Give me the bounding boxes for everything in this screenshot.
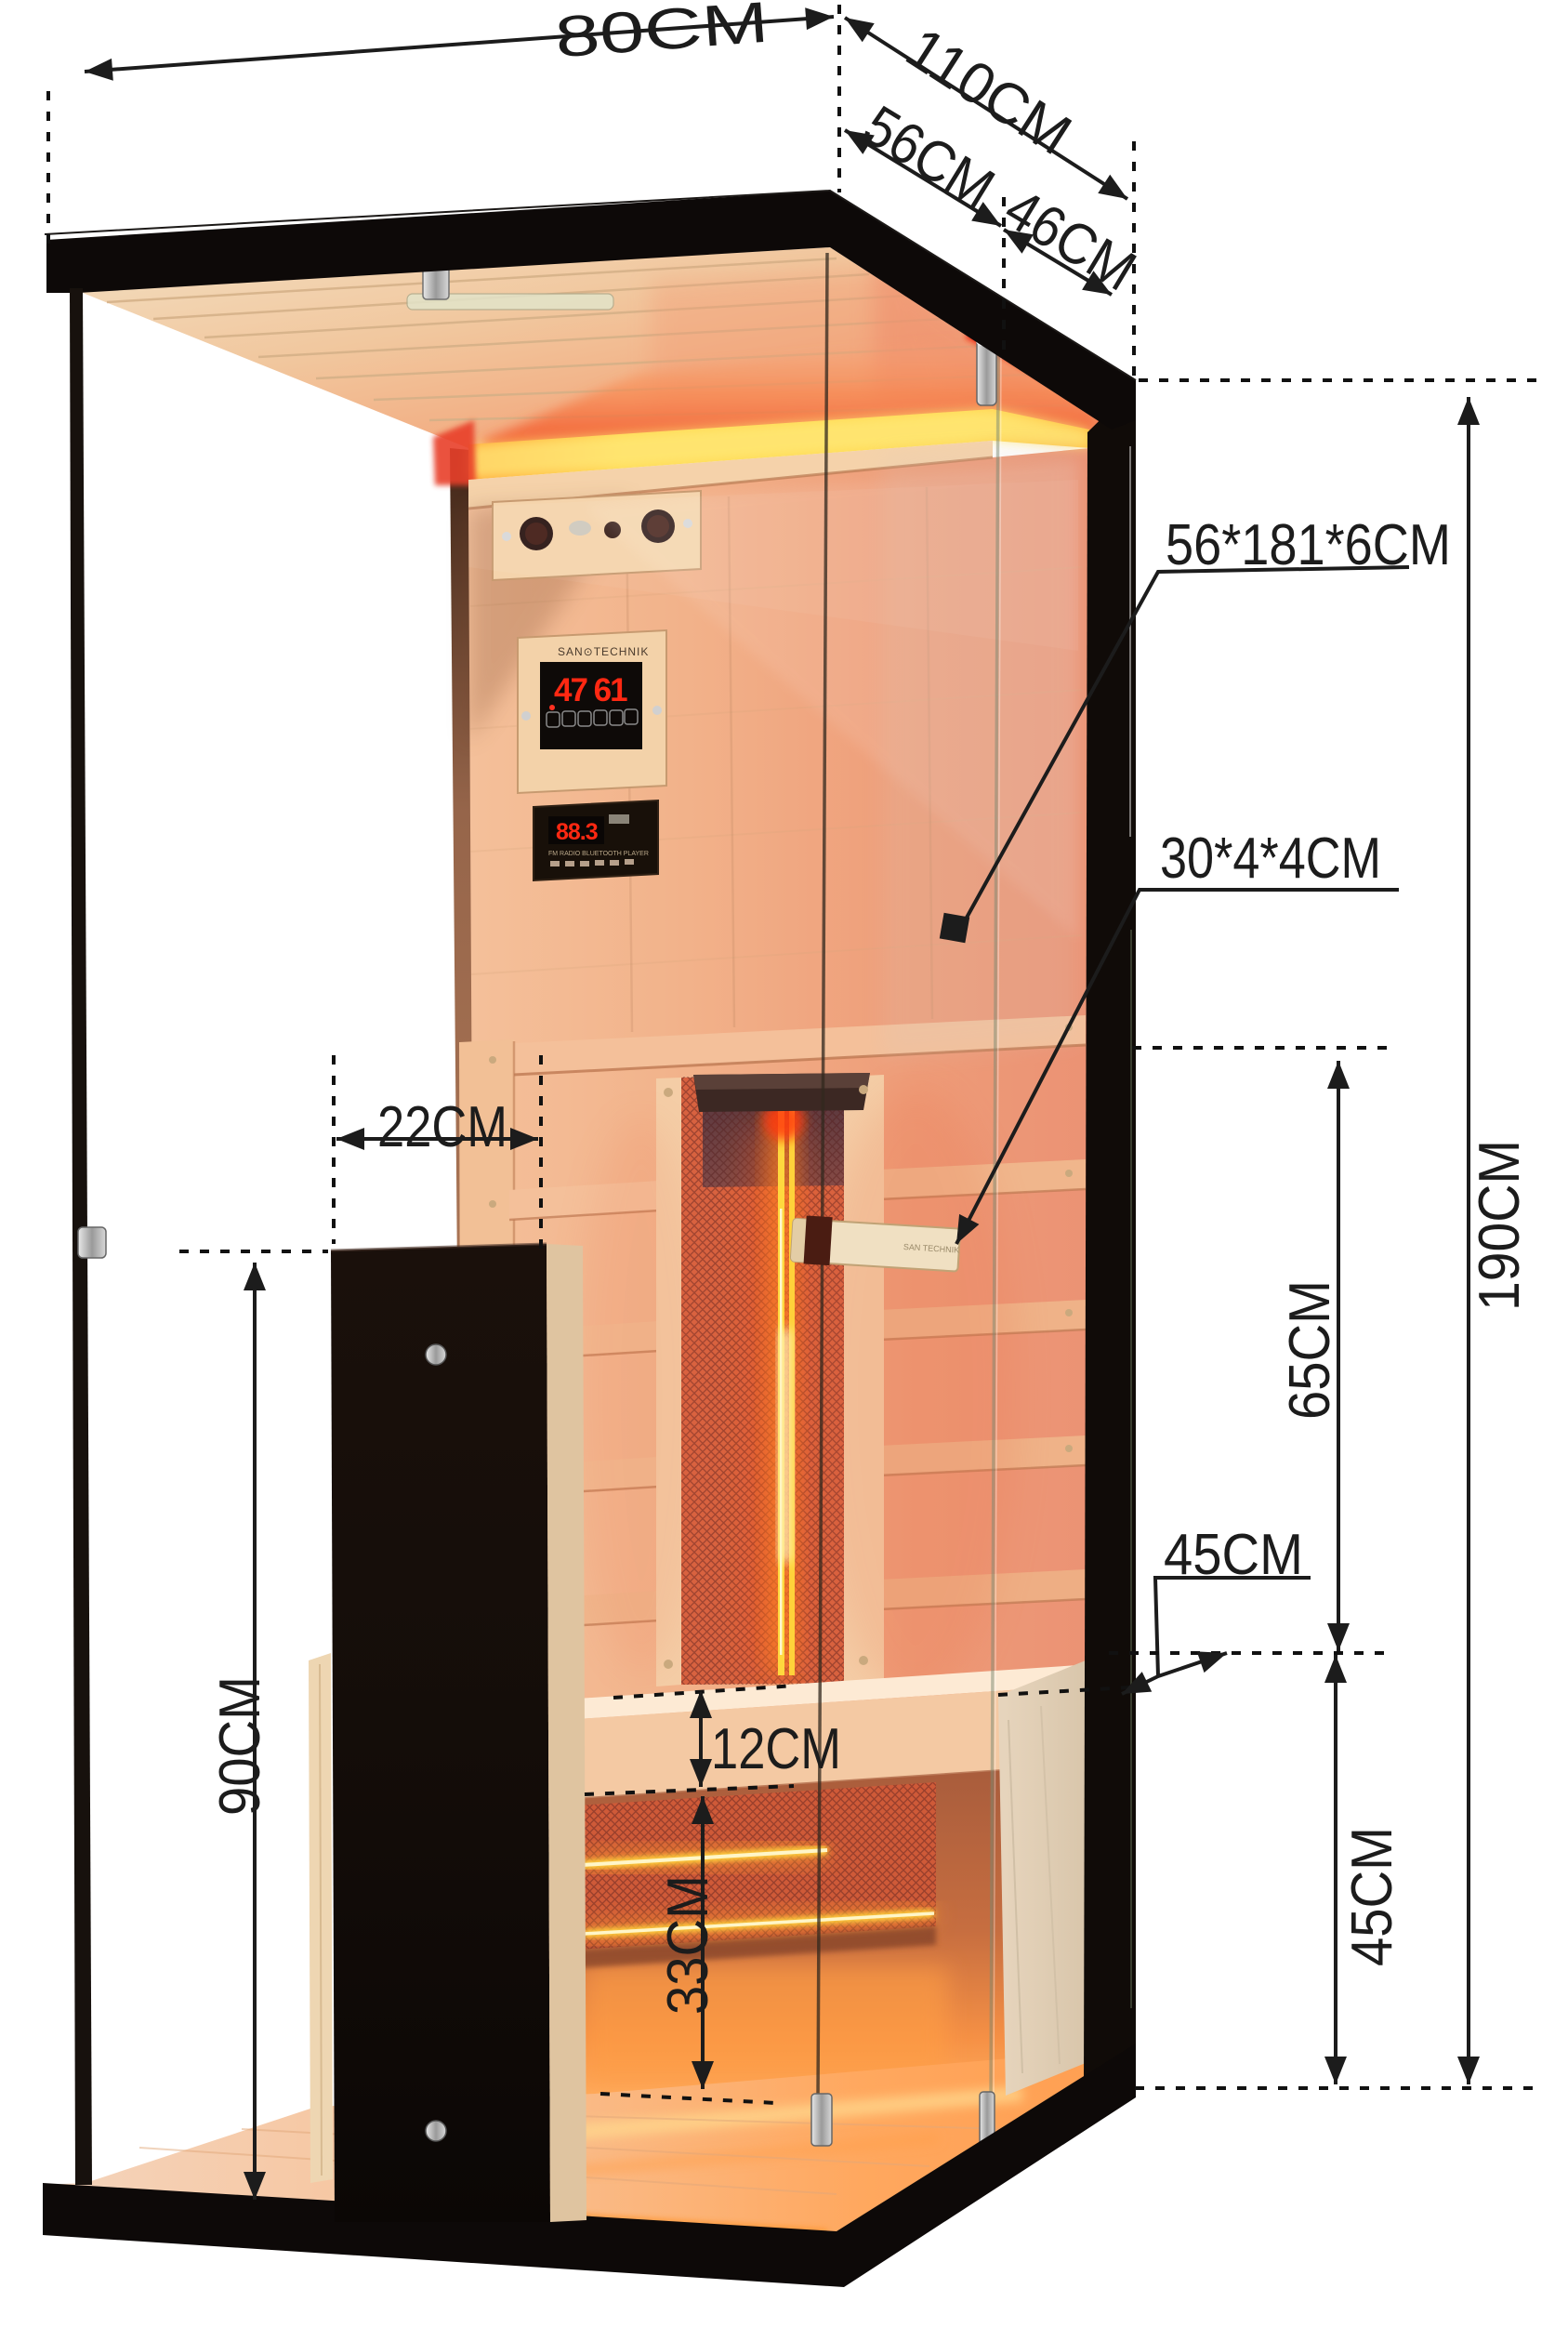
svg-text:65CM: 65CM	[1278, 1280, 1342, 1420]
svg-text:33CM: 33CM	[656, 1875, 720, 2015]
svg-text:12CM: 12CM	[711, 1717, 841, 1781]
svg-text:56*181*6CM: 56*181*6CM	[1166, 513, 1451, 577]
svg-text:FM RADIO BLUETOOTH PLAYER: FM RADIO BLUETOOTH PLAYER	[548, 851, 649, 857]
svg-text:90CM: 90CM	[208, 1676, 272, 1816]
svg-text:47 61: 47 61	[554, 672, 627, 708]
svg-text:30*4*4CM: 30*4*4CM	[1160, 827, 1381, 891]
svg-text:190CM: 190CM	[1468, 1140, 1532, 1311]
svg-text:45CM: 45CM	[1164, 1523, 1303, 1587]
svg-text:45CM: 45CM	[1340, 1827, 1404, 1966]
svg-text:88.3: 88.3	[556, 819, 598, 845]
svg-text:SAN⊙TECHNIK: SAN⊙TECHNIK	[558, 645, 649, 658]
svg-text:22CM: 22CM	[377, 1095, 507, 1159]
